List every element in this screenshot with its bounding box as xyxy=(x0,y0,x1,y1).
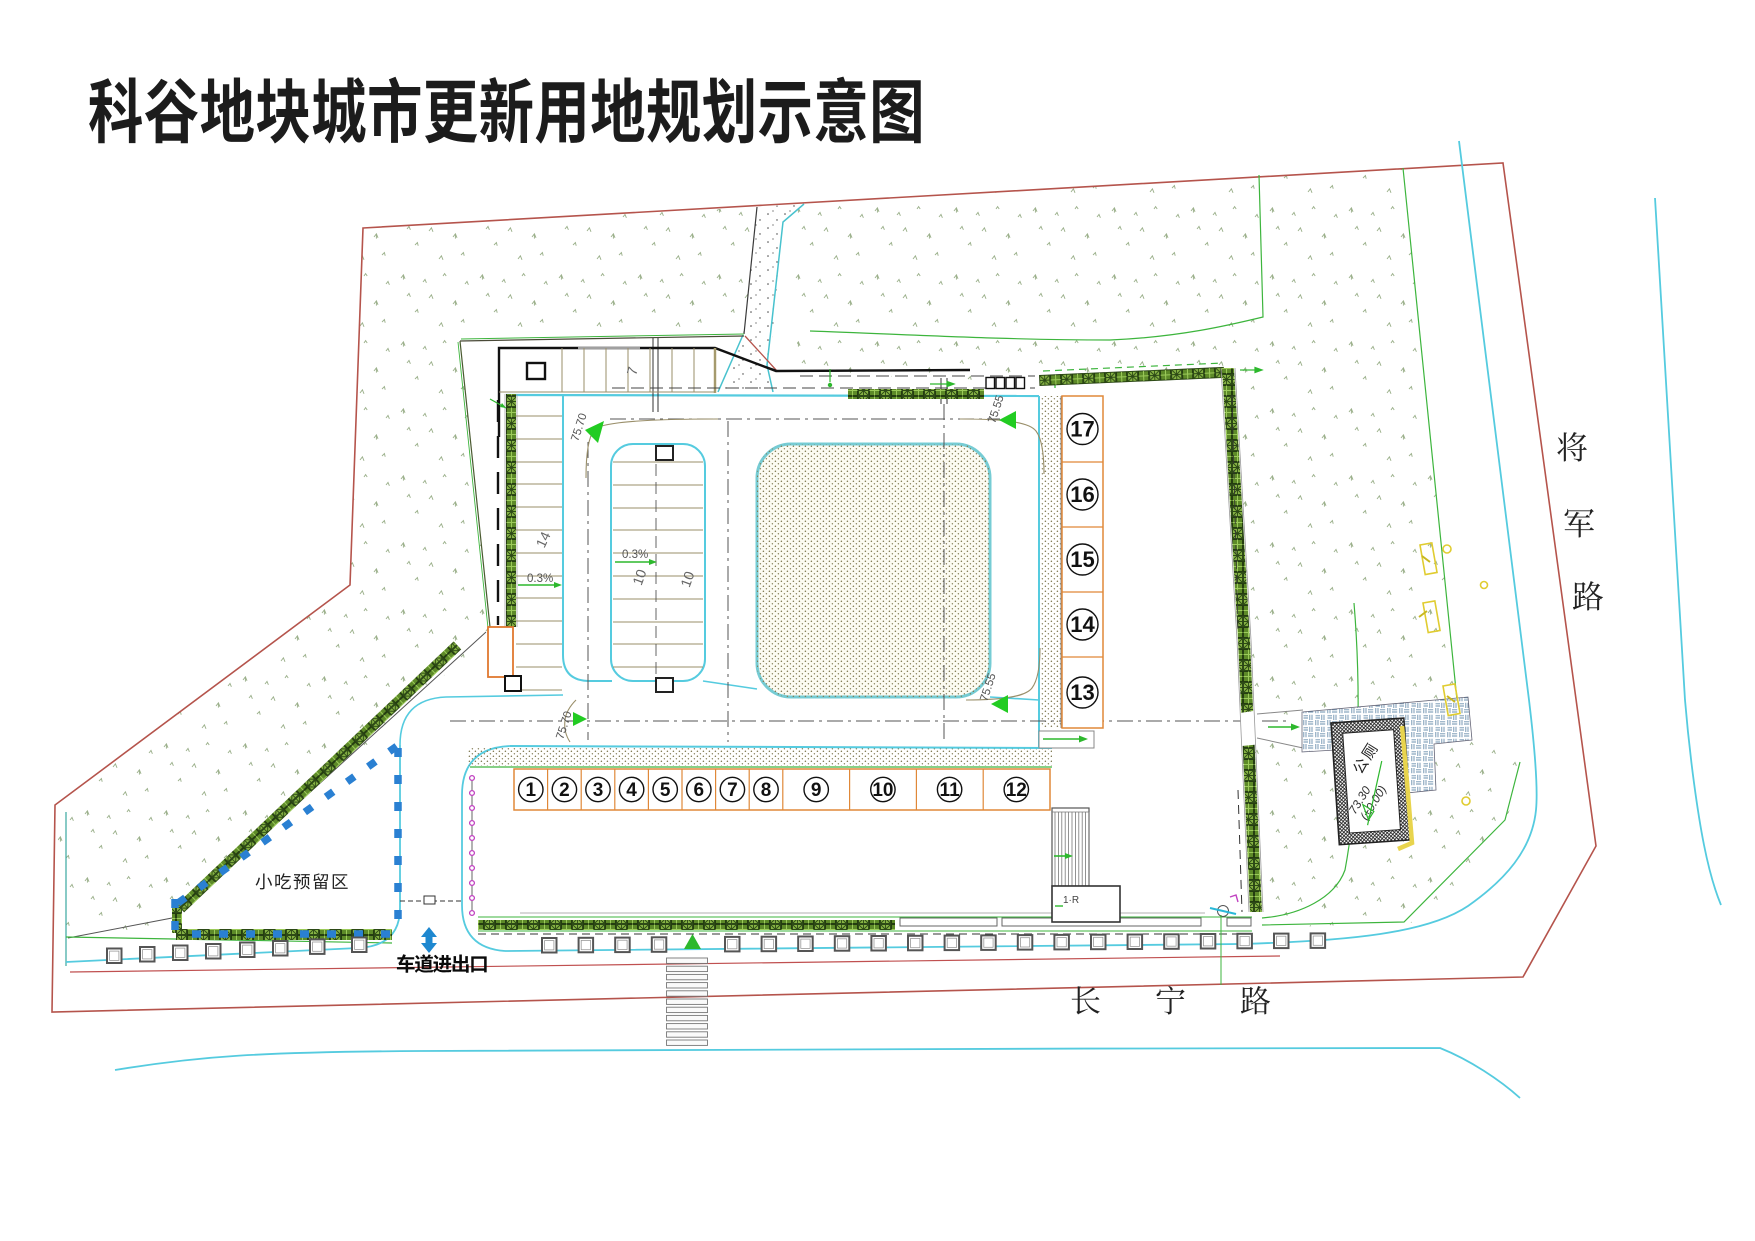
svg-text:10: 10 xyxy=(872,780,893,801)
svg-text:16: 16 xyxy=(1070,482,1094,507)
svg-text:15: 15 xyxy=(1070,547,1094,572)
svg-text:4: 4 xyxy=(626,780,637,801)
svg-text:1·R: 1·R xyxy=(1063,895,1079,906)
svg-text:5: 5 xyxy=(660,780,671,801)
svg-text:17: 17 xyxy=(1070,417,1094,442)
svg-text:12: 12 xyxy=(1006,780,1027,801)
svg-text:7: 7 xyxy=(727,780,738,801)
svg-text:8: 8 xyxy=(761,780,772,801)
svg-text:0.3%: 0.3% xyxy=(622,549,648,561)
svg-text:0.3%: 0.3% xyxy=(527,573,553,585)
svg-text:2: 2 xyxy=(559,780,570,801)
svg-text:6: 6 xyxy=(694,780,705,801)
svg-text:1: 1 xyxy=(526,780,537,801)
svg-text:11: 11 xyxy=(940,780,961,801)
svg-text:14: 14 xyxy=(1070,612,1095,637)
svg-text:9: 9 xyxy=(811,780,822,801)
svg-text:13: 13 xyxy=(1070,680,1094,705)
svg-text:3: 3 xyxy=(593,780,604,801)
